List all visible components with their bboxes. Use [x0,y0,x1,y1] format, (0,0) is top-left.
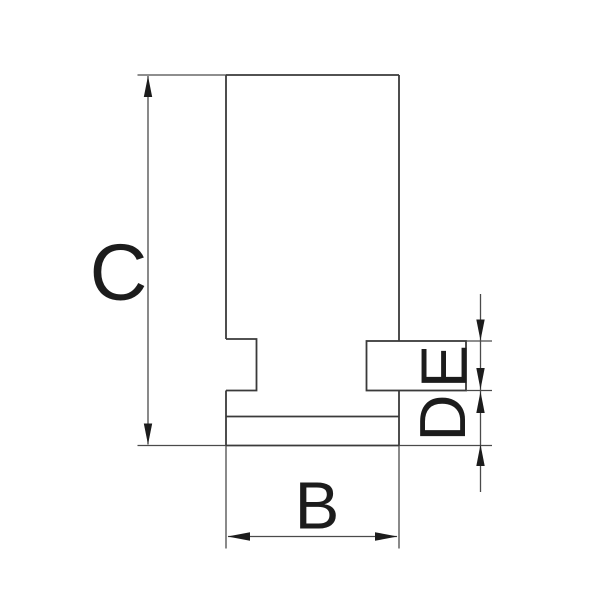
arrowhead-down [144,424,152,445]
technical-drawing: C B E D [0,0,600,600]
drawing-canvas: C B E D [0,0,600,600]
part-outline [226,75,466,446]
arrowhead-down-to-tab-top [476,320,484,341]
arrowhead-left [228,532,251,541]
dimension-c: C [90,75,226,446]
arrowhead-up [144,76,152,97]
dimension-label-d: D [406,395,479,442]
arrowhead-up-to-bottom-edge [476,445,484,467]
dimension-label-e: E [407,345,480,388]
dimension-label-c: C [90,228,148,317]
dimension-label-b: B [295,469,340,544]
left-notch [226,339,257,391]
dimension-b: B [226,446,399,549]
arrowhead-right [375,532,398,541]
dimension-d-e: E D [399,294,492,492]
